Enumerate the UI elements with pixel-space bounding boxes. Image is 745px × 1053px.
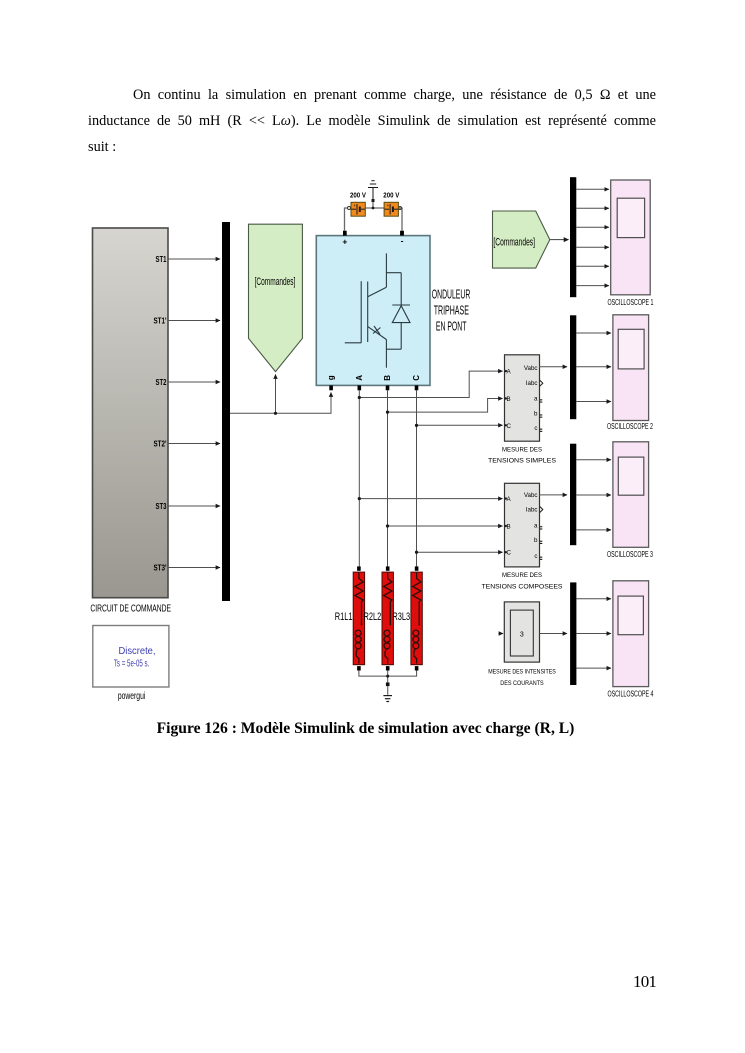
- svg-text:200 V: 200 V: [383, 190, 399, 199]
- svg-text:ST1': ST1': [154, 316, 167, 325]
- svg-text:[Commandes]: [Commandes]: [493, 236, 535, 248]
- svg-text:R2L2: R2L2: [364, 611, 382, 623]
- svg-text:3: 3: [520, 632, 524, 639]
- svg-text:TENSIONS COMPOSEES: TENSIONS COMPOSEES: [482, 584, 563, 591]
- svg-text:R3L3: R3L3: [392, 611, 410, 623]
- svg-text:+: +: [342, 237, 347, 247]
- svg-text:Discrete,: Discrete,: [119, 646, 156, 657]
- svg-text:ST3': ST3': [154, 563, 167, 572]
- svg-text:a: a: [534, 396, 538, 403]
- svg-text:DES COURANTS: DES COURANTS: [500, 680, 543, 687]
- svg-text:C: C: [412, 375, 421, 381]
- svg-text:200 V: 200 V: [350, 190, 366, 199]
- svg-text:powergui: powergui: [118, 691, 146, 702]
- svg-text:ST1: ST1: [156, 255, 167, 264]
- svg-text:C: C: [507, 423, 512, 430]
- svg-text:b: b: [534, 537, 538, 544]
- svg-text:a: a: [534, 522, 538, 529]
- svg-text:g: g: [327, 375, 336, 380]
- svg-text:Iabc: Iabc: [526, 506, 538, 513]
- svg-text:C: C: [507, 550, 512, 557]
- svg-text:c: c: [534, 553, 537, 560]
- svg-text:MESURE DES: MESURE DES: [502, 572, 542, 579]
- svg-text:OSCILLOSCOPE 4: OSCILLOSCOPE 4: [608, 689, 654, 698]
- svg-text:Vabc: Vabc: [524, 492, 538, 499]
- svg-text:Ts = 5e-05 s.: Ts = 5e-05 s.: [114, 658, 150, 669]
- svg-text:B: B: [507, 524, 511, 531]
- svg-text:ST3: ST3: [156, 502, 167, 511]
- svg-text:OSCILLOSCOPE 2: OSCILLOSCOPE 2: [607, 422, 653, 431]
- svg-text:CIRCUIT DE COMMANDE: CIRCUIT DE COMMANDE: [90, 604, 171, 615]
- svg-text:[Commandes]: [Commandes]: [255, 276, 296, 288]
- svg-text:TENSIONS SIMPLES: TENSIONS SIMPLES: [488, 458, 556, 465]
- svg-text:c: c: [534, 425, 537, 432]
- svg-text:-: -: [401, 236, 404, 246]
- svg-text:EN PONT: EN PONT: [436, 319, 467, 333]
- svg-text:+: +: [354, 203, 357, 208]
- svg-text:MESURE DES: MESURE DES: [502, 446, 542, 453]
- svg-text:ONDULEUR: ONDULEUR: [432, 288, 471, 302]
- svg-text:OSCILLOSCOPE 1: OSCILLOSCOPE 1: [608, 298, 654, 307]
- svg-text:B: B: [507, 396, 511, 403]
- svg-text:+: +: [387, 203, 390, 208]
- svg-text:Iabc: Iabc: [526, 380, 538, 387]
- svg-text:OSCILLOSCOPE 3: OSCILLOSCOPE 3: [607, 550, 653, 559]
- svg-text:MESURE DES INTENSITES: MESURE DES INTENSITES: [488, 668, 556, 675]
- svg-text:TRIPHASE: TRIPHASE: [434, 304, 469, 318]
- svg-text:R1L1: R1L1: [335, 611, 353, 623]
- svg-text:A: A: [355, 375, 364, 381]
- svg-text:Vabc: Vabc: [524, 365, 538, 372]
- svg-text:ST2: ST2: [156, 378, 167, 387]
- svg-text:B: B: [383, 375, 392, 381]
- svg-text:b: b: [534, 411, 538, 418]
- svg-text:ST2': ST2': [154, 439, 167, 448]
